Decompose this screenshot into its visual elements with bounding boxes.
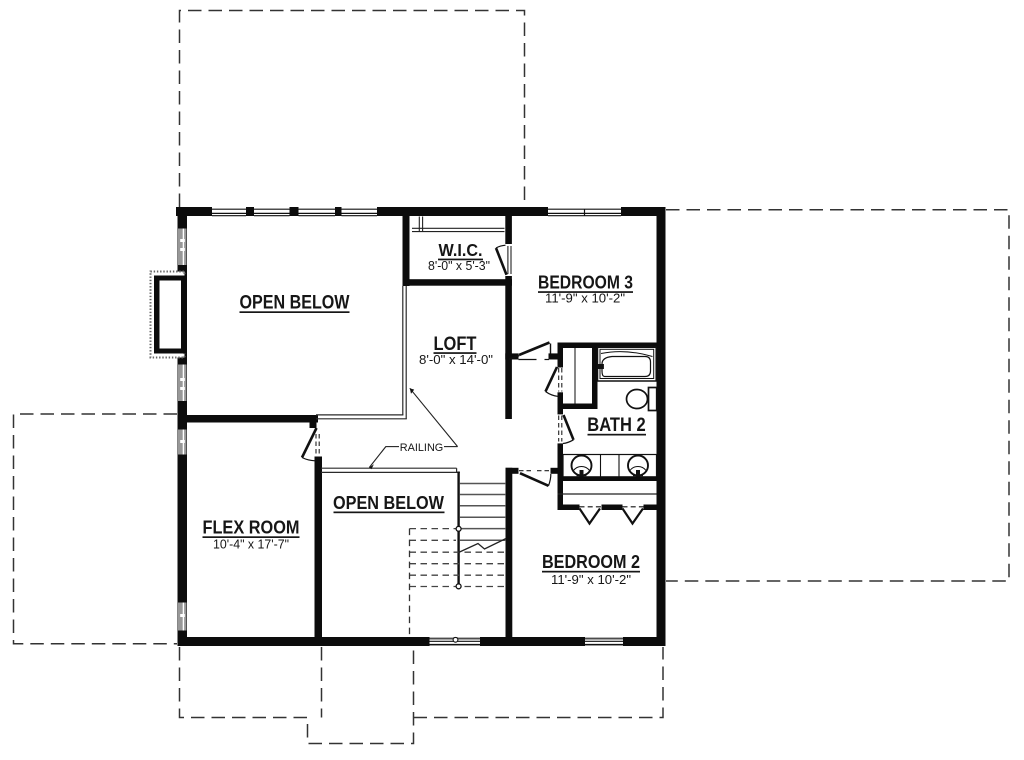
svg-text:FLEX ROOM: FLEX ROOM: [203, 517, 300, 538]
svg-text:OPEN BELOW: OPEN BELOW: [333, 492, 444, 513]
svg-text:8'-0" x 14'-0": 8'-0" x 14'-0": [419, 352, 493, 367]
svg-text:8'-0" x 5'-3": 8'-0" x 5'-3": [428, 258, 490, 273]
svg-text:BEDROOM 2: BEDROOM 2: [542, 551, 640, 572]
svg-text:BATH 2: BATH 2: [587, 415, 646, 436]
svg-text:OPEN BELOW: OPEN BELOW: [240, 293, 350, 314]
svg-text:10'-4" x 17'-7": 10'-4" x 17'-7": [213, 537, 289, 552]
svg-text:W.I.C.: W.I.C.: [439, 240, 483, 260]
svg-text:11'-9" x 10'-2": 11'-9" x 10'-2": [545, 291, 625, 306]
svg-text:BEDROOM 3: BEDROOM 3: [538, 272, 633, 293]
svg-text:RAILING: RAILING: [400, 442, 444, 454]
svg-text:11'-9" x 10'-2": 11'-9" x 10'-2": [551, 572, 631, 587]
